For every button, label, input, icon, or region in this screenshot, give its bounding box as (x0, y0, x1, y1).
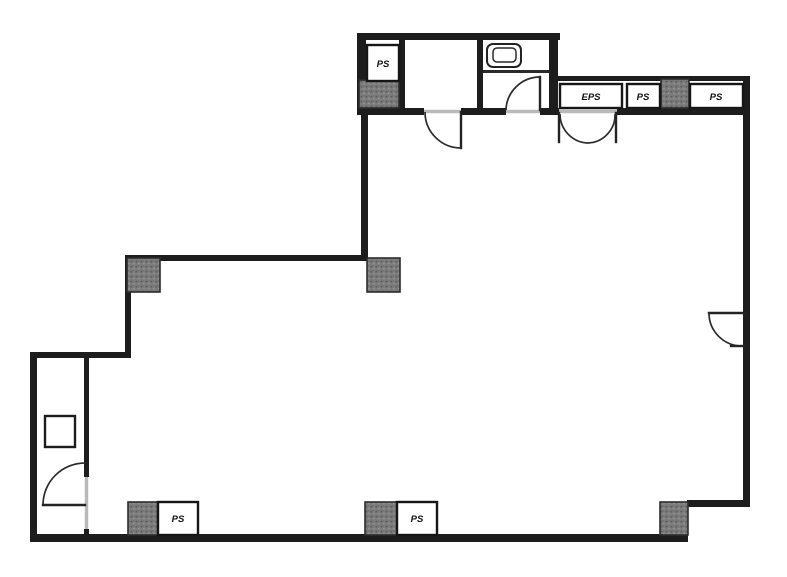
toilet-door-arc (506, 77, 540, 110)
wall-mid-vertical (361, 115, 368, 256)
eps-label: EPS (581, 92, 601, 103)
wall-divider-closet-toilet (477, 40, 483, 110)
wall-mid-horizontal (125, 255, 368, 261)
wall-entry-partition (84, 358, 89, 477)
toilet-tank-inner-icon (493, 48, 516, 62)
entry-door-arc (43, 463, 85, 505)
double-door-right-arc (588, 114, 615, 143)
ps-label-top-mid: PS (637, 92, 650, 103)
hatched-columns (127, 79, 689, 535)
wall-top-bottom-seg2 (461, 108, 506, 115)
ps-label-bottom-right: PS (411, 514, 424, 525)
column-notch-left (127, 258, 160, 292)
wall-toilet-partition (483, 70, 549, 73)
wall-top-bottom-seg1 (357, 108, 424, 115)
right-wall-door-arc (709, 313, 742, 346)
wall-shaft-strip-top (558, 76, 750, 81)
column-notch-right (367, 258, 400, 292)
wall-right-outer (743, 78, 750, 507)
entry-fixture-box (45, 416, 75, 447)
wall-left-outer (30, 352, 37, 542)
column-top-strip (661, 79, 689, 108)
shaft-label-boxes: PS EPS PS PS PS PS (158, 45, 743, 535)
closet-door-arc (425, 112, 461, 148)
thresholds (87, 112, 618, 530)
double-door-left-arc (560, 114, 588, 143)
column-top-left (359, 80, 399, 108)
wall-entry-partition-stub (84, 529, 89, 536)
wall-top-section-right (549, 33, 558, 113)
wall-bottom-step (687, 500, 750, 507)
floor-plan-drawing: PS EPS PS PS PS PS (0, 0, 787, 577)
floor-plan: PS EPS PS PS PS PS (0, 0, 787, 577)
column-bottom-right (660, 502, 688, 535)
ps-label-bottom-left: PS (172, 514, 185, 525)
wall-top-section-top (357, 33, 560, 40)
wall-left-horizontal (30, 352, 131, 358)
fixtures (45, 44, 521, 447)
wall-top-bottom-seg3 (540, 108, 559, 115)
ps-label-top-right: PS (710, 92, 723, 103)
column-bottom-left (128, 502, 158, 535)
column-bottom-mid (365, 502, 397, 535)
ps-label-top-left: PS (377, 59, 390, 70)
